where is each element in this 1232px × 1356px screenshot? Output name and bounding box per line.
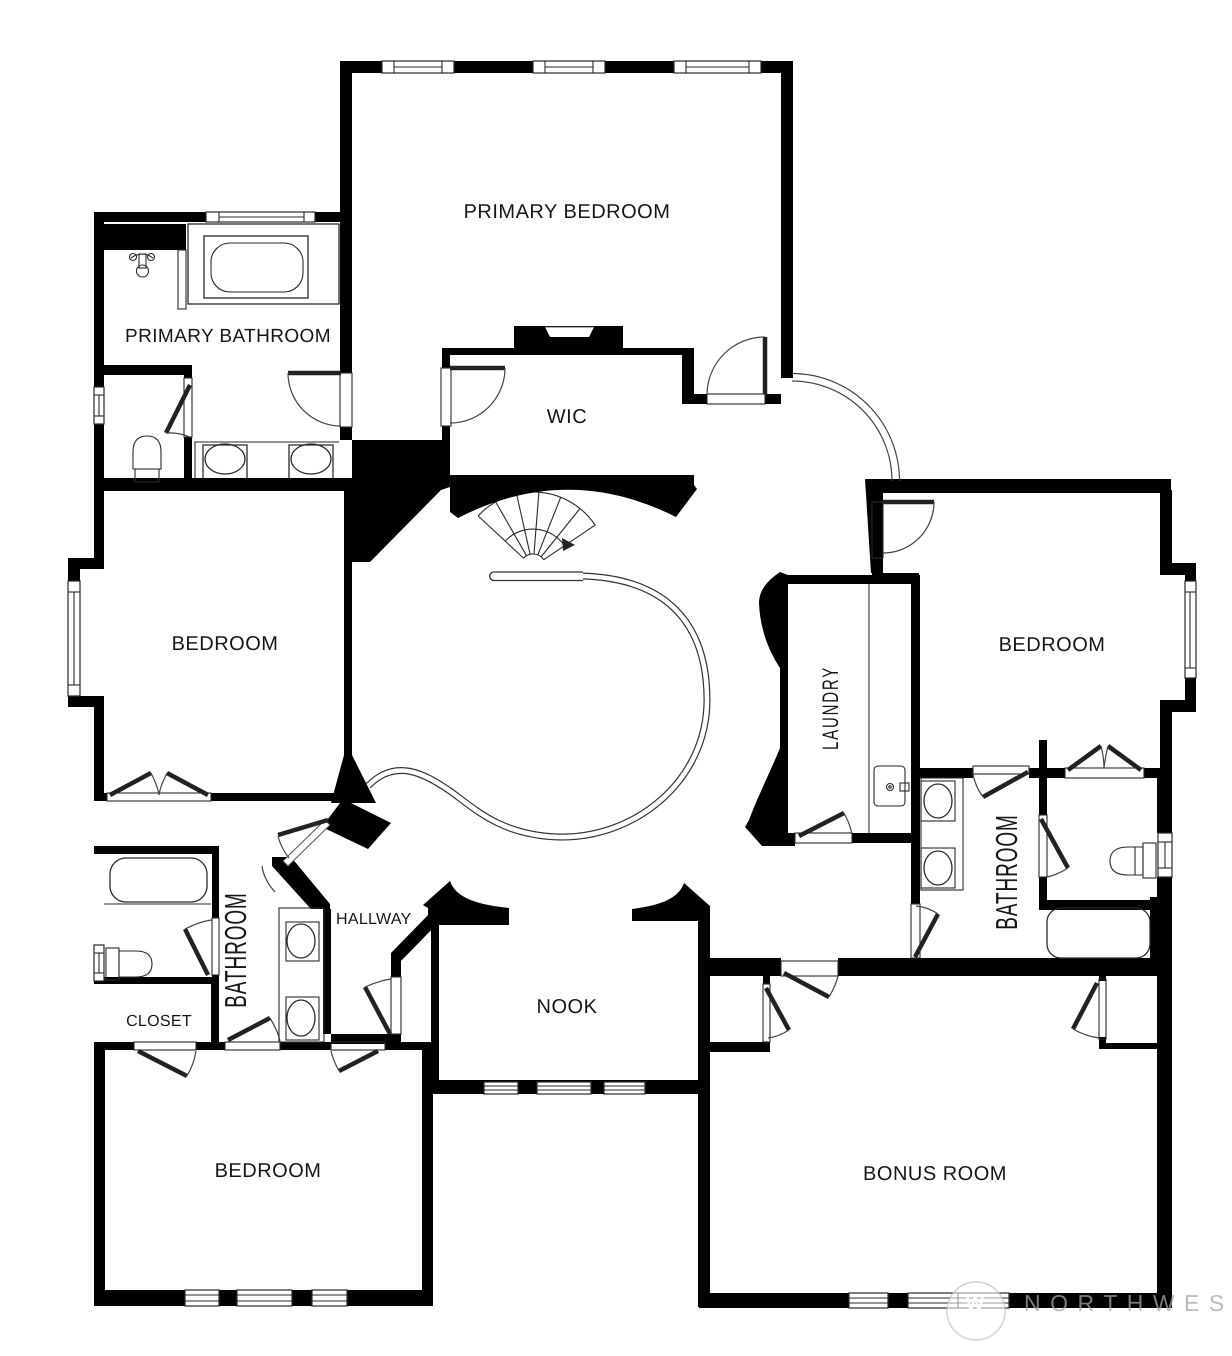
svg-text:BEDROOM: BEDROOM xyxy=(215,1160,322,1182)
svg-text:BONUS ROOM: BONUS ROOM xyxy=(863,1163,1007,1185)
svg-text:BATHROOM: BATHROOM xyxy=(991,814,1025,930)
svg-text:PRIMARY BEDROOM: PRIMARY BEDROOM xyxy=(464,201,671,223)
svg-text:BEDROOM: BEDROOM xyxy=(172,633,279,655)
svg-text:PRIMARY BATHROOM: PRIMARY BATHROOM xyxy=(125,326,331,347)
svg-text:BATHROOM: BATHROOM xyxy=(220,892,254,1008)
svg-text:W: W xyxy=(966,1294,984,1315)
svg-text:LAUNDRY: LAUNDRY xyxy=(819,666,845,750)
svg-text:NORTHWEST: NORTHWEST xyxy=(1024,1290,1232,1316)
svg-text:WIC: WIC xyxy=(547,406,587,428)
svg-text:BEDROOM: BEDROOM xyxy=(999,634,1106,656)
svg-text:HALLWAY: HALLWAY xyxy=(336,911,412,928)
svg-text:NOOK: NOOK xyxy=(537,996,598,1018)
svg-text:CLOSET: CLOSET xyxy=(126,1013,192,1030)
